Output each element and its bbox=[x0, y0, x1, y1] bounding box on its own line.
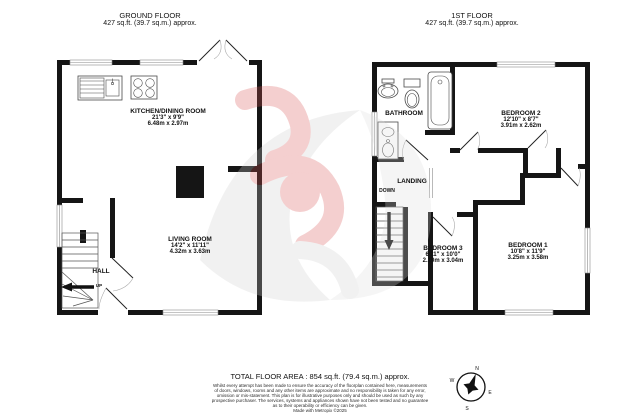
basin bbox=[378, 79, 398, 98]
compass-w: W bbox=[450, 378, 455, 384]
down-label: DOWN bbox=[379, 189, 395, 194]
ground-floor-title: GROUND FLOOR bbox=[103, 12, 196, 20]
first-floor-area: 427 sq.ft. (39.7 sq.m.) approx. bbox=[425, 20, 518, 28]
hall-label: HALL bbox=[92, 268, 109, 275]
first-floor-title: 1ST FLOOR bbox=[425, 12, 518, 20]
disclaimer: Whilst every attempt has been made to en… bbox=[212, 384, 429, 414]
ground-floor-header: GROUND FLOOR 427 sq.ft. (39.7 sq.m.) app… bbox=[103, 12, 196, 28]
compass-rose: N E S W bbox=[450, 366, 493, 412]
hall-door bbox=[112, 258, 133, 291]
compass-n: N bbox=[475, 366, 479, 372]
bathroom-label: BATHROOM bbox=[385, 110, 423, 117]
kitchen-label: KITCHEN/DINING ROOM 21'3" x 9'9" 6.48m x… bbox=[130, 108, 205, 128]
hob bbox=[131, 76, 157, 99]
window bbox=[505, 310, 553, 315]
bedroom1-label: BEDROOM 1 10'8" x 11'9" 3.25m x 3.58m bbox=[508, 242, 549, 262]
landing-label: LANDING bbox=[397, 178, 427, 185]
kitchen-sink bbox=[78, 76, 122, 100]
bedroom2-door bbox=[460, 132, 480, 150]
bathtub bbox=[428, 72, 452, 129]
window bbox=[140, 60, 183, 65]
window bbox=[497, 62, 555, 67]
up-arrow bbox=[61, 283, 94, 292]
window bbox=[70, 60, 112, 65]
floorplan-drawing: N E S W bbox=[0, 0, 640, 415]
total-floor-area: TOTAL FLOOR AREA : 854 sq.ft. (79.4 sq.m… bbox=[230, 373, 409, 381]
first-floor-header: 1ST FLOOR 427 sq.ft. (39.7 sq.m.) approx… bbox=[425, 12, 518, 28]
window bbox=[57, 205, 62, 247]
living-room-label: LIVING ROOM 14'2" x 11'11" 4.32m x 3.63m bbox=[168, 236, 212, 256]
french-doors bbox=[199, 40, 247, 61]
compass-s: S bbox=[465, 406, 469, 412]
closet-door bbox=[528, 130, 548, 148]
toilet bbox=[404, 79, 420, 108]
bedroom2-label: BEDROOM 2 12'10" x 8'7" 3.91m x 2.62m bbox=[501, 110, 542, 130]
floorplan-page: N E S W GROUND FLOOR 427 sq.ft. (39.7 sq… bbox=[0, 0, 640, 415]
compass-e: E bbox=[488, 390, 492, 396]
window bbox=[585, 228, 590, 273]
metropix-credit: Made with Metropix ©2025 bbox=[212, 409, 429, 414]
bedroom3-door bbox=[433, 217, 455, 236]
chimney-breast bbox=[176, 166, 204, 198]
bedroom1-door bbox=[561, 168, 580, 186]
up-label: UP bbox=[96, 284, 102, 289]
window bbox=[163, 310, 218, 315]
front-door bbox=[99, 288, 127, 309]
bedroom3-label: BEDROOM 3 6'11" x 10'0" 2.10m x 3.04m bbox=[423, 245, 464, 265]
ground-floor-area: 427 sq.ft. (39.7 sq.m.) approx. bbox=[103, 20, 196, 28]
